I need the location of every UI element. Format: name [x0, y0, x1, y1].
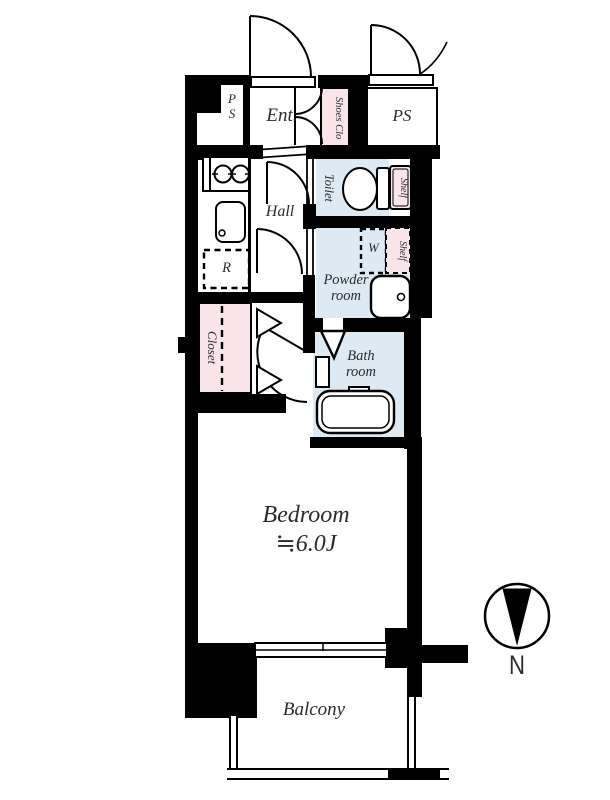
ps-shaft-small-label: P S — [222, 92, 242, 121]
balcony-window — [255, 643, 387, 657]
toilet-icon — [343, 168, 389, 210]
entry-door-swing — [250, 16, 311, 77]
refrigerator-label: R — [204, 260, 249, 276]
bath-room-label: Bath room — [318, 348, 404, 380]
toilet-label: Toilet — [318, 160, 335, 216]
closet-folding-door — [257, 309, 281, 394]
balcony-label: Balcony — [244, 699, 384, 720]
bedroom-size-label: ≒6.0J — [226, 531, 386, 558]
shoes-closet-label: Shoes Clo — [326, 90, 343, 146]
hall-label: Hall — [252, 203, 308, 221]
ps-door-swing — [371, 25, 447, 74]
bathtub-icon — [317, 387, 394, 433]
compass-icon — [485, 584, 549, 648]
entrance-step-lines — [254, 146, 312, 158]
powder-shelf-label: Shelf — [390, 231, 407, 271]
stove-icon — [203, 157, 251, 191]
bedroom-label: Bedroom — [226, 502, 386, 529]
toilet-door-swing — [267, 162, 309, 204]
pipe-space-label: PS — [366, 106, 438, 125]
closet-label: Closet — [200, 316, 219, 380]
kitchen-sink-icon — [216, 202, 245, 242]
powder-room-label: Powder room — [314, 272, 378, 304]
powder-door-swing — [257, 229, 302, 274]
toilet-shelf-label: Shelf — [393, 170, 408, 206]
entrance-label: Ent. — [252, 105, 312, 126]
washer-label: W — [361, 241, 386, 255]
bedroom-door-swing — [257, 327, 307, 402]
compass-north-label: N — [500, 650, 534, 680]
floorplan: P S Ent. Shoes Clo PS Toilet Shelf Hall … — [0, 0, 610, 800]
